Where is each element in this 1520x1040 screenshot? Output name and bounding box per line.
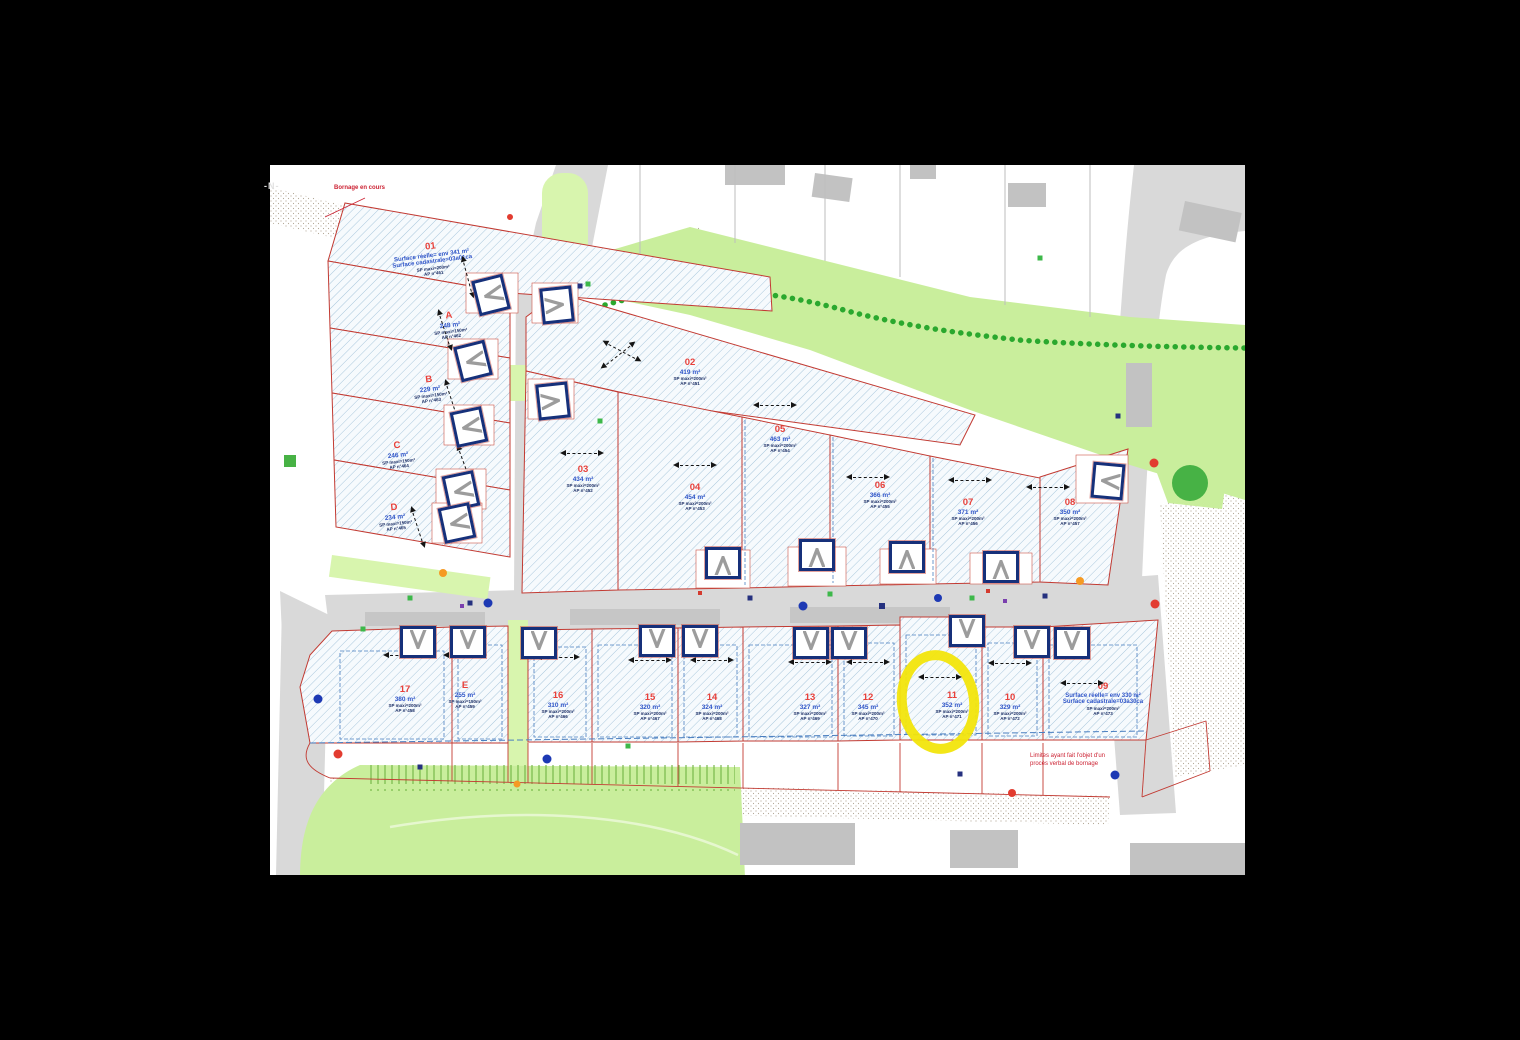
lot-parcels	[300, 203, 1158, 743]
parcel-12	[838, 625, 900, 741]
parcel-09	[1043, 620, 1158, 740]
site-plan-map: 01 Surface réelle= env 341 m² Surface ca…	[270, 165, 1245, 875]
limites-note: Limites ayant fait l'objet d'un procès v…	[1030, 753, 1114, 769]
page-background: { "colors":{ "bg":"#000000","map_bg":"#f…	[0, 0, 1520, 1040]
tree	[1172, 465, 1208, 501]
parcel-10	[982, 627, 1043, 740]
parcel-E	[452, 626, 508, 743]
parcel-13	[743, 626, 838, 741]
parcel-17	[300, 627, 452, 743]
bornage-note: Bornage en cours	[334, 185, 385, 191]
north-indicator: -N-	[264, 181, 280, 191]
parcel-14	[678, 627, 743, 742]
parcel-16	[528, 629, 592, 742]
